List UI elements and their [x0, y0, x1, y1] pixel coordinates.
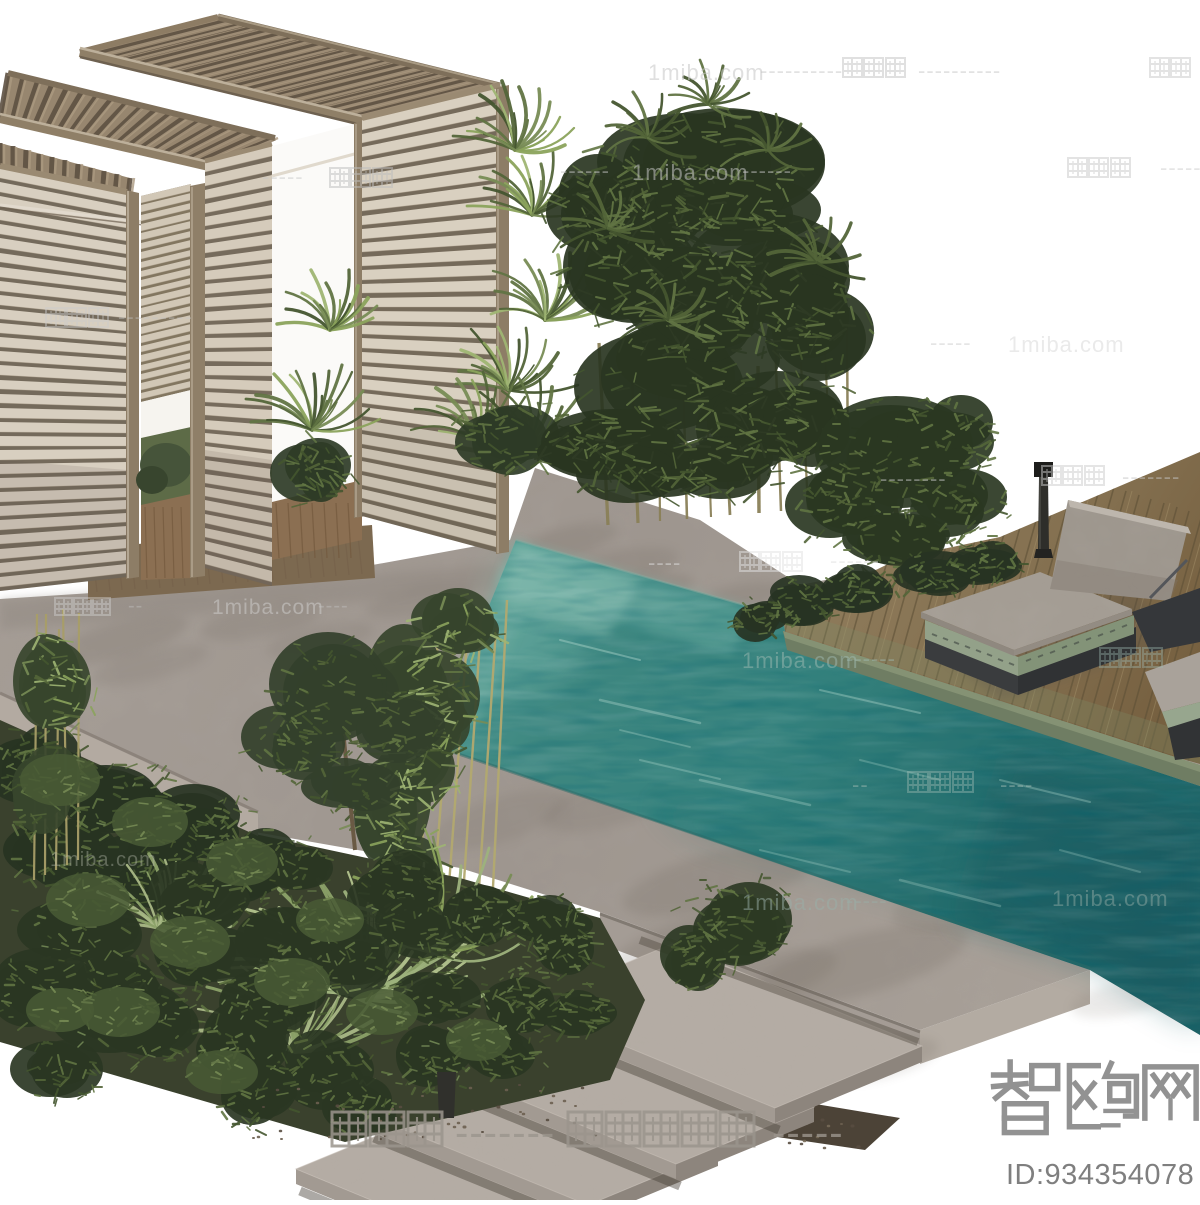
svg-text:------: ------ — [560, 158, 610, 183]
svg-text:1miba.com: 1miba.com — [50, 849, 157, 871]
svg-text:1miba.com: 1miba.com — [648, 60, 765, 85]
svg-text:------: ------ — [846, 646, 896, 671]
svg-text:------: ------ — [830, 548, 880, 573]
svg-text:----: ---- — [1000, 772, 1033, 797]
svg-text:1miba.com: 1miba.com — [632, 160, 749, 185]
svg-text:----------: ---------- — [918, 58, 1001, 83]
svg-text:1miba.com: 1miba.com — [742, 890, 859, 915]
svg-text:-------: ------- — [455, 1111, 555, 1155]
svg-text:--------: -------- — [880, 466, 947, 491]
svg-text:1miba.com: 1miba.com — [1052, 886, 1169, 911]
svg-text:ID:934354078: ID:934354078 — [1006, 1159, 1194, 1191]
svg-text:1miba.com: 1miba.com — [1008, 332, 1125, 357]
svg-text:-----: ----- — [1160, 155, 1200, 180]
svg-text:-----: ----- — [772, 1111, 844, 1155]
svg-text:----------: ---------- — [760, 58, 843, 83]
svg-text:----: ---- — [648, 550, 681, 575]
svg-text:1miba.com: 1miba.com — [742, 648, 859, 673]
svg-text:-----: ----- — [262, 164, 304, 189]
svg-text:------: ------ — [742, 158, 792, 183]
svg-text:-----: ----- — [930, 330, 972, 355]
svg-text:-----: ----- — [846, 888, 888, 913]
svg-text:----: ---- — [318, 595, 349, 617]
svg-text:1miba.com: 1miba.com — [212, 596, 324, 619]
svg-text:---------: --------- — [118, 304, 193, 329]
svg-text:--: -- — [128, 595, 143, 617]
svg-text:-------: ------- — [1122, 464, 1180, 489]
svg-text:--: -- — [852, 772, 869, 797]
